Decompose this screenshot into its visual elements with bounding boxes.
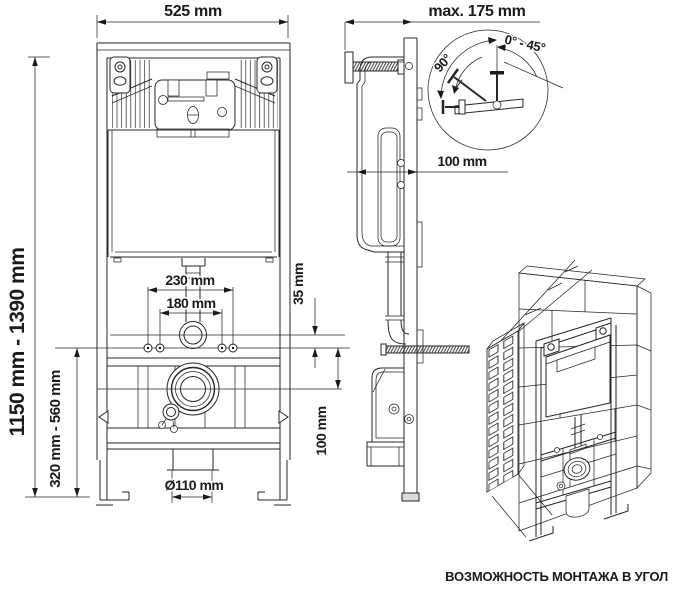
drain-stub [167,449,219,470]
max-depth-label: max. 175 mm [428,3,525,20]
dim-flush-offset: 35 mm [290,263,318,368]
dim-drain-diameter: Ø110 mm [165,470,224,503]
dim-frame-depth: 100 mm [347,153,508,175]
dim-width: 525 mm [97,3,288,38]
angle-90-label: 90° [431,51,455,75]
cistern-side-profile [357,57,405,252]
cistern [108,130,279,262]
screw-vertical-icon [490,45,504,101]
frame-depth-label: 100 mm [437,153,486,169]
outlet-height-label: 320 mm - 560 mm [47,370,64,488]
side-dimensions: max. 175 mm 100 mm [345,3,540,175]
bolt-inner-label: 180 mm [166,295,215,311]
mounting-stud-side [381,344,469,355]
screw-angled-icon [448,69,486,101]
angle-range-label: 0° - 45° [503,32,547,56]
height-range-label: 1150 mm - 1390 mm [6,248,29,437]
lever-rod [168,97,204,101]
drain-diameter-label: Ø110 mm [165,477,224,493]
dim-drain-offset: 100 mm [313,348,341,456]
flush-pipe-side [385,252,409,344]
width-label: 525 mm [164,3,222,20]
drain-socket [97,363,342,433]
technical-drawing-page: 525 mm 1150 mm - 1390 mm 320 mm - 560 mm… [0,0,691,600]
access-panel [155,72,235,137]
corner-mounting-caption: ВОЗМОЖНОСТЬ МОНТАЖА В УГОЛ [445,569,668,584]
drain-offset-label: 100 mm [313,406,329,455]
perforated-block [487,323,524,492]
side-rail [402,38,423,501]
bolt-outer-label: 230 mm [165,272,214,288]
drain-elbow-side [367,368,414,466]
angle-detail: 90° 0° - 45° [428,30,563,150]
installation-diagram: 525 mm 1150 mm - 1390 mm 320 mm - 560 mm… [0,0,691,600]
adjuster-screw-icon [159,96,168,105]
rail-foot [402,493,419,501]
flush-offset-label: 35 mm [290,263,306,305]
frame-legs [96,443,291,505]
corner-frame [529,318,628,541]
dim-outlet-height: 320 mm - 560 mm [47,348,80,497]
corner-view [487,260,651,541]
